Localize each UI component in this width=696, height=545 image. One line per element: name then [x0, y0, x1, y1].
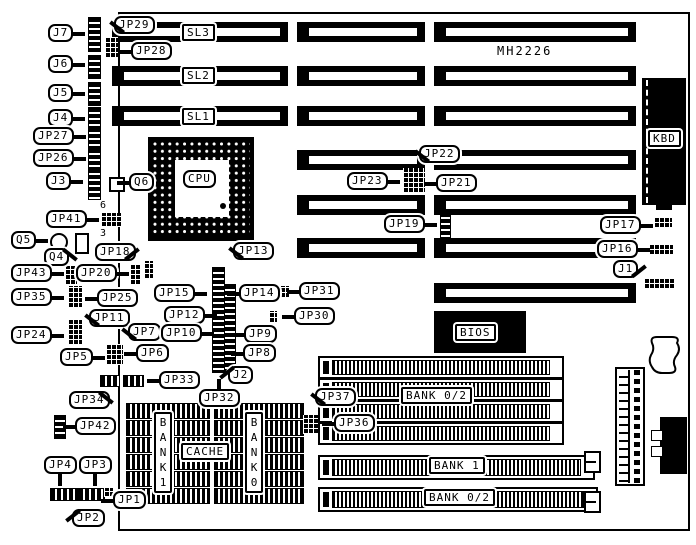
callout-jp25: JP25 [97, 289, 138, 307]
isa-slot-segment [297, 150, 425, 170]
callout-jp33: JP33 [159, 371, 200, 389]
jumper-strip-jp4 [50, 488, 78, 501]
callout-jp42: JP42 [75, 417, 116, 435]
isa-slot-segment [434, 106, 636, 126]
jumper-block-jp35-jp25 [68, 286, 82, 308]
callout-jp28: JP28 [131, 42, 172, 60]
isa-slot-segment [297, 66, 425, 86]
jumper-block-jp1 [104, 488, 113, 497]
callout-jp26: JP26 [33, 149, 74, 167]
small-connector [584, 451, 601, 473]
callout-j7: J7 [48, 24, 73, 42]
callout-jp8: JP8 [243, 344, 276, 362]
jumper-block-jp5-jp6-jp7 [106, 344, 123, 365]
callout-j4: J4 [48, 109, 73, 127]
pin-header-j5 [88, 82, 101, 106]
jumper-strip-jp33 [123, 375, 144, 387]
jumper-block-jp28-jp29 [105, 37, 118, 58]
callout-j6: J6 [48, 55, 73, 73]
callout-jp7: JP7 [128, 323, 161, 341]
callout-jp23: JP23 [347, 172, 388, 190]
slot-label-sl3: SL3 [182, 24, 215, 41]
callout-jp27: JP27 [33, 127, 74, 145]
motherboard-diagram: SL3 SL2 SL1 MH2226 CPU 6 3 BIOS [0, 0, 696, 545]
jumper-block-jp18 [144, 261, 153, 279]
callout-jp5: JP5 [60, 348, 93, 366]
jumper-block-jp21-jp22-jp23 [403, 168, 425, 193]
callout-j3: J3 [46, 172, 71, 190]
isa-slot-segment [434, 66, 636, 86]
connector-jp17 [654, 218, 672, 228]
pin-header-j3 [88, 168, 101, 200]
callout-jp32: JP32 [199, 389, 240, 407]
callout-jp30: JP30 [294, 307, 335, 325]
jumper-strip-jp19 [440, 212, 451, 241]
callout-jp35: JP35 [11, 288, 52, 306]
jumper-block-jp41 [101, 213, 122, 227]
jumper-block-jp30 [269, 311, 277, 323]
cpu-pin1-dot [220, 203, 226, 209]
callout-jp41: JP41 [46, 210, 87, 228]
callout-jp29: JP29 [114, 16, 155, 34]
callout-jp34: JP34 [69, 391, 110, 409]
isa-slot-segment [297, 106, 425, 126]
kbd-label: KBD [648, 130, 681, 147]
callout-jp21: JP21 [436, 174, 477, 192]
keyboard-connector-bump [656, 205, 672, 210]
callout-jp10: JP10 [161, 324, 202, 342]
jp41-pin3-number: 3 [100, 229, 106, 239]
connector-j1 [644, 278, 675, 289]
power-connector [615, 367, 645, 486]
callout-jp15: JP15 [154, 284, 195, 302]
callout-q4: Q4 [44, 248, 69, 266]
callout-j1: J1 [613, 260, 638, 278]
pin-header-jp26 [88, 148, 101, 169]
callout-jp22: JP22 [419, 145, 460, 163]
callout-jp13: JP13 [233, 242, 274, 260]
oscillator-outline [647, 334, 683, 376]
callout-jp18: JP18 [95, 243, 136, 261]
board-part-number: MH2226 [497, 44, 552, 58]
isa-slot-segment [297, 238, 425, 258]
pin-header-j4 [88, 107, 101, 129]
callout-jp24: JP24 [11, 326, 52, 344]
isa-slot-segment [434, 195, 636, 215]
bank0-column-label: BANK0 [245, 412, 263, 493]
slot-label-sl1: SL1 [182, 108, 215, 125]
callout-jp20: JP20 [76, 264, 117, 282]
callout-jp36: JP36 [334, 414, 375, 432]
simm-socket [318, 356, 564, 379]
cpu-label: CPU [183, 170, 216, 188]
jumper-block-jp36-jp37 [303, 415, 318, 434]
callout-jp19: JP19 [384, 215, 425, 233]
isa-slot-segment [434, 150, 636, 170]
callout-jp2: JP2 [72, 509, 105, 527]
at-power-notch [651, 446, 663, 457]
callout-jp6: JP6 [136, 344, 169, 362]
bank02-top-label: BANK 0/2 [401, 387, 472, 404]
isa-slot-segment [434, 22, 636, 42]
callout-jp12: JP12 [164, 306, 205, 324]
slot-label-sl2: SL2 [182, 67, 215, 84]
cache-label: CACHE [181, 443, 229, 460]
jumper-column-right [224, 284, 236, 375]
cpu-socket [148, 137, 254, 241]
bank02-bottom-label: BANK 0/2 [424, 489, 495, 506]
at-power-socket [660, 417, 687, 474]
isa-slot-segment [297, 195, 425, 215]
callout-q6: Q6 [129, 173, 154, 191]
isa-slot-segment [297, 22, 425, 42]
callout-jp14: JP14 [239, 284, 280, 302]
callout-jp43: JP43 [11, 264, 52, 282]
callout-jp17: JP17 [600, 216, 641, 234]
bank1-simm-label: BANK 1 [429, 457, 485, 474]
callout-jp9: JP9 [244, 325, 277, 343]
callout-jp37: JP37 [315, 388, 356, 406]
callout-jp31: JP31 [299, 282, 340, 300]
isa-slot-segment [434, 283, 636, 303]
pin-header-jp27 [88, 127, 101, 149]
callout-j2: J2 [228, 366, 253, 384]
bios-label: BIOS [455, 324, 496, 341]
jumper-strip-jp34 [100, 375, 120, 387]
small-connector [584, 491, 601, 513]
callout-q5: Q5 [11, 231, 36, 249]
pin-header-j6 [88, 55, 101, 79]
bank1-column-label: BANK1 [154, 412, 172, 493]
jumper-block-jp24-jp11 [68, 320, 82, 345]
callout-jp1: JP1 [113, 491, 146, 509]
jumper-block-jp20 [130, 265, 141, 285]
pin-header-j7 [88, 17, 101, 52]
callout-jp16: JP16 [597, 240, 638, 258]
at-power-notch [651, 430, 663, 441]
callout-jp4: JP4 [44, 456, 77, 474]
jp41-pin6-number: 6 [100, 201, 106, 211]
callout-j5: J5 [48, 84, 73, 102]
callout-jp11: JP11 [89, 309, 130, 327]
connector-jp16 [649, 244, 673, 255]
callout-jp3: JP3 [79, 456, 112, 474]
component-q4 [75, 233, 89, 254]
